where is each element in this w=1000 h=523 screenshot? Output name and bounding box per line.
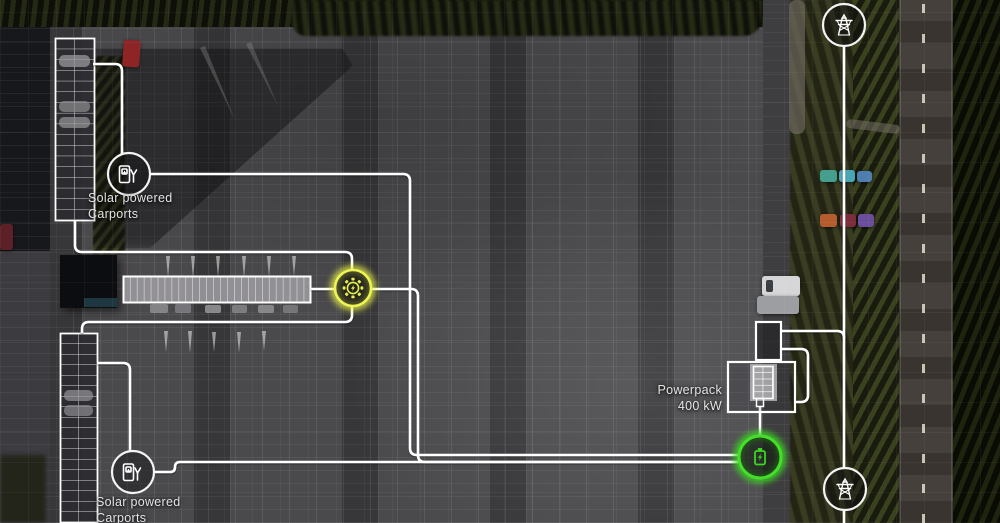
cable-array-to-carport-node-bottom <box>97 363 130 451</box>
solar-carport-long <box>124 277 311 303</box>
powerpack-label-line1: Powerpack <box>657 383 722 397</box>
powerpack-box <box>728 362 795 412</box>
energy-diagram-overlay <box>0 0 1000 523</box>
solar-node <box>334 269 372 307</box>
carport-bottom-label-line2: Carports <box>96 510 181 523</box>
carport-top-label-line2: Carports <box>88 206 173 222</box>
carport-node-bottom <box>112 451 154 493</box>
carport-bottom-label: Solar powered Carports <box>96 494 181 523</box>
inverter-box <box>756 322 781 360</box>
grid-node-bottom <box>824 468 866 510</box>
carport-node-top <box>108 153 150 195</box>
carport-top-label: Solar powered Carports <box>88 190 173 222</box>
carport-bottom-label-line1: Solar powered <box>96 495 181 509</box>
powerpack-label: Powerpack 400 kW <box>612 382 722 414</box>
cable-array-to-carport-node-top <box>93 64 122 154</box>
cable-array-bottom-to-solar-node <box>82 306 352 333</box>
carport-top-label-line1: Solar powered <box>88 191 173 205</box>
cable-carport-bottom-to-battery <box>154 462 738 472</box>
aerial-parking-lot-scene: Solar powered Carports Solar powered Car… <box>0 0 1000 523</box>
battery-node <box>738 435 782 479</box>
ground-marks <box>164 42 296 353</box>
cable-inverter-to-grid <box>781 331 844 338</box>
grid-node-top <box>823 4 865 46</box>
cable-solar-node-to-battery <box>371 289 738 462</box>
powerpack-label-line2: 400 kW <box>612 398 722 414</box>
cable-array-top-to-solar-node <box>75 221 352 270</box>
solar-array-bottom-left <box>61 334 98 523</box>
